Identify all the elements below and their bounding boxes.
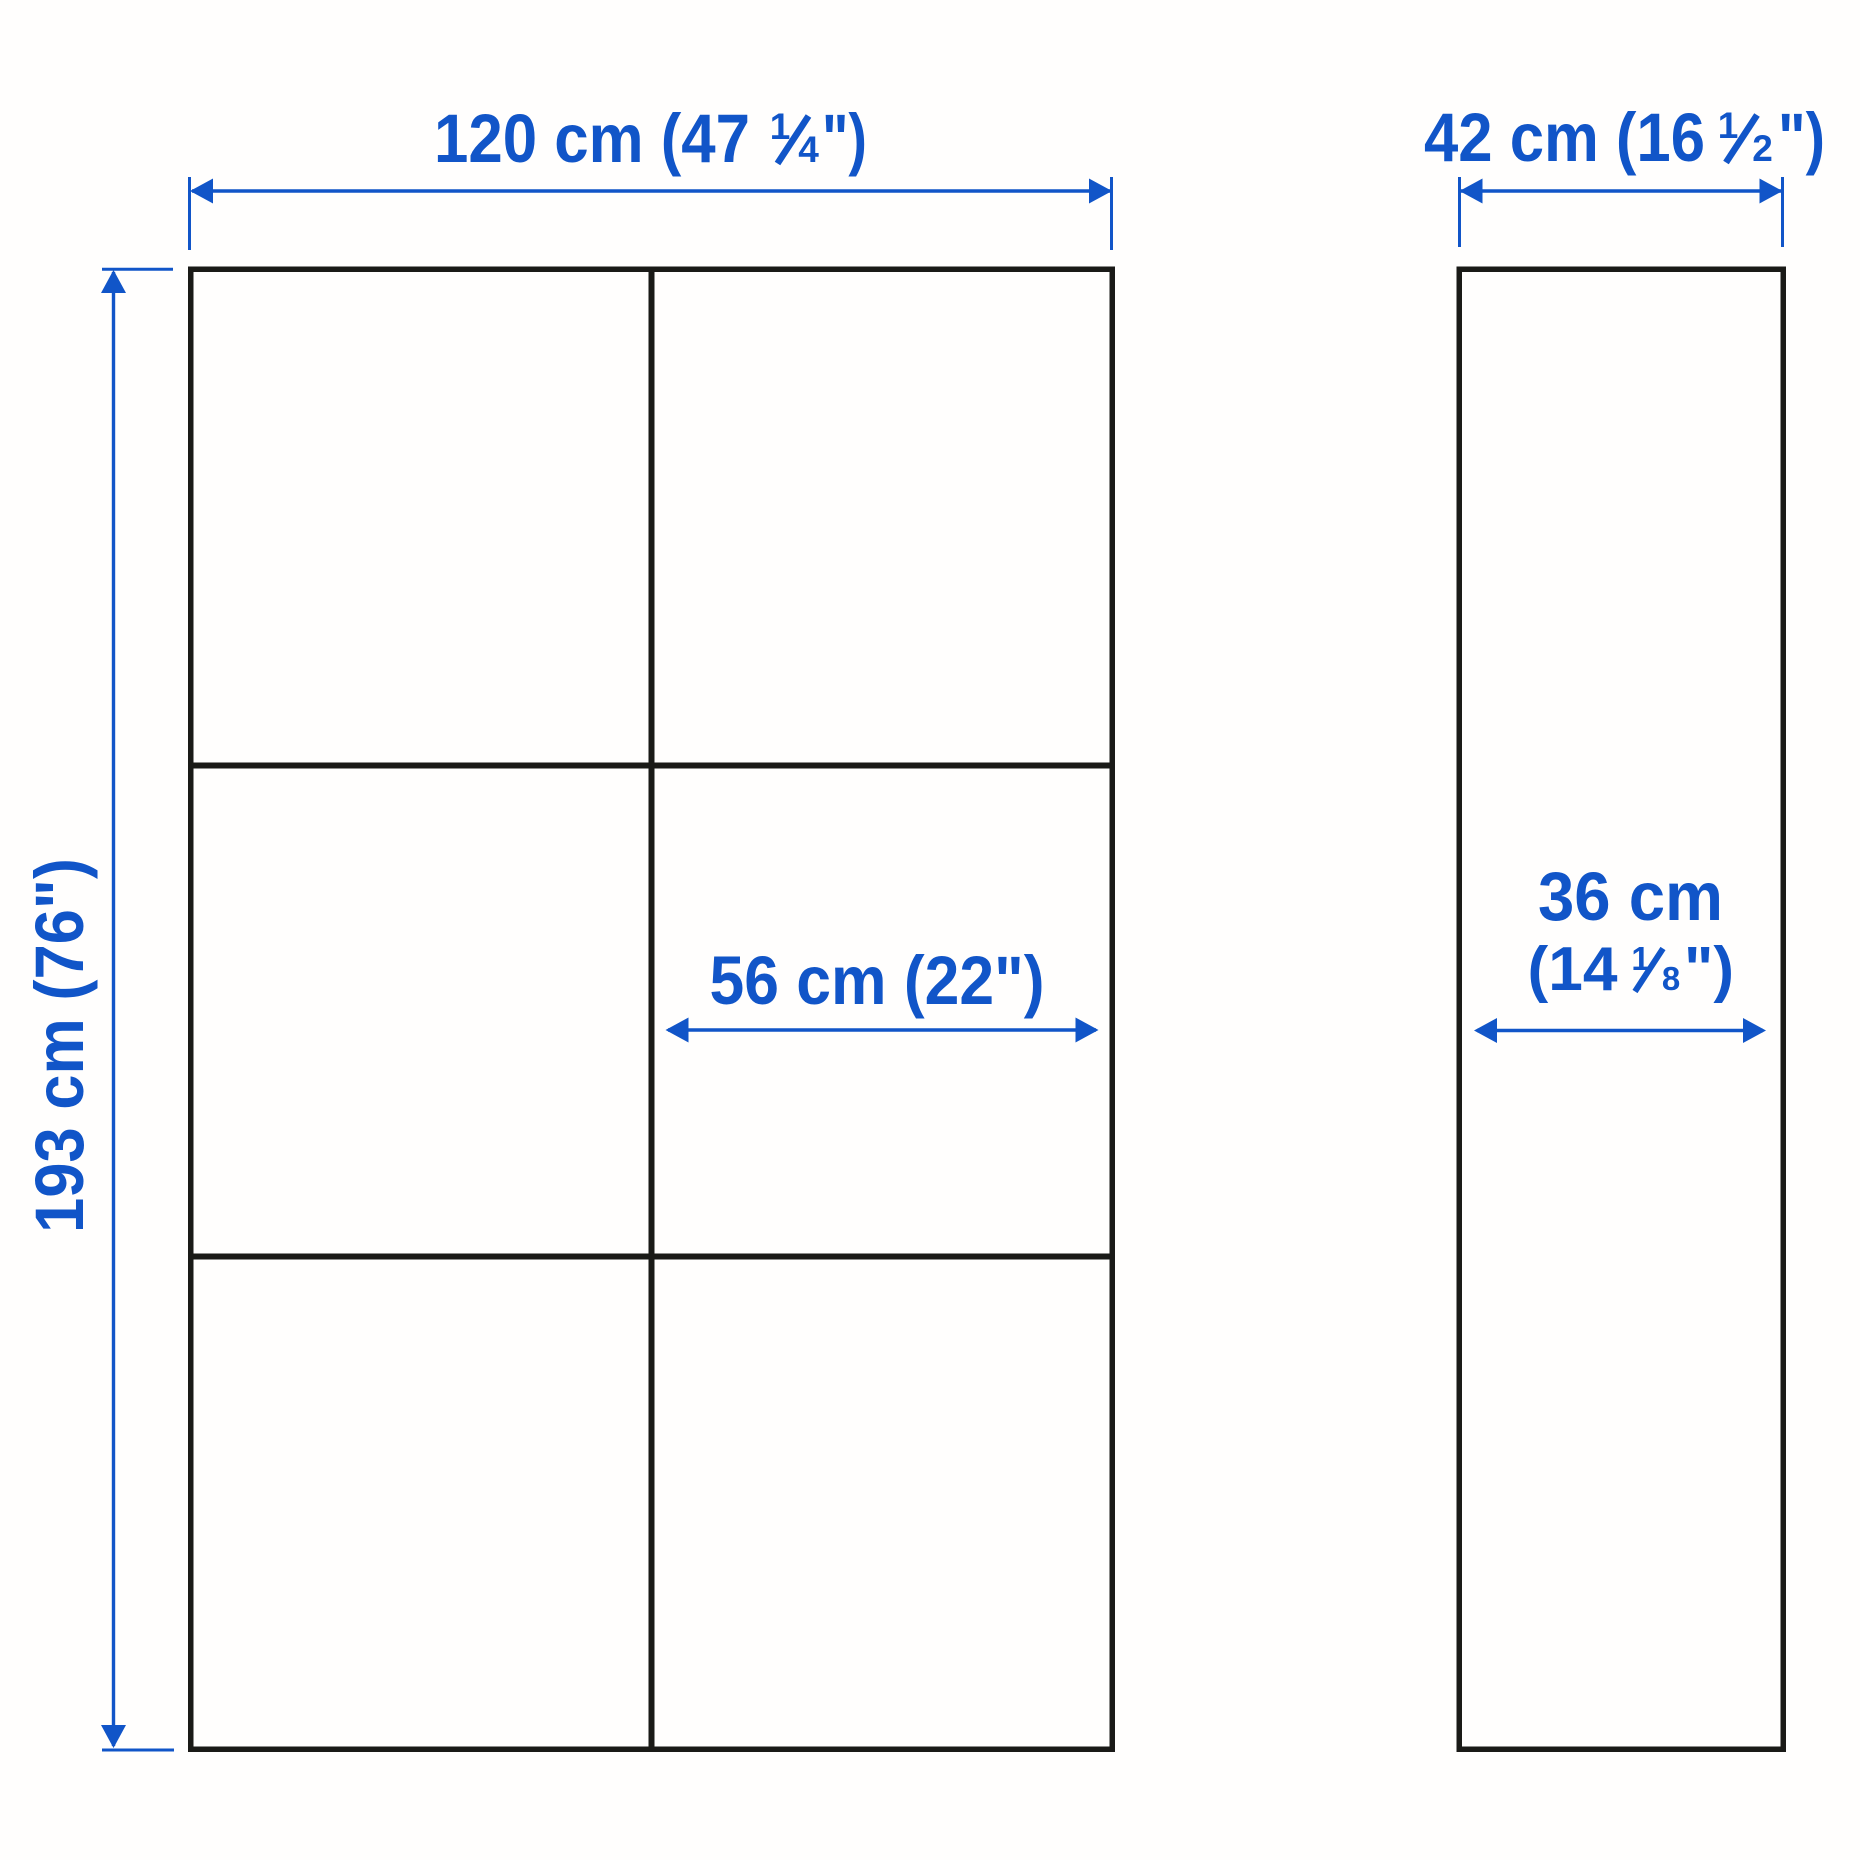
svg-text:1: 1 bbox=[1718, 105, 1739, 146]
svg-text:42 cm (16: 42 cm (16 bbox=[1424, 99, 1705, 176]
svg-text:56 cm (22"): 56 cm (22") bbox=[710, 942, 1045, 1019]
svg-text:193 cm (76"): 193 cm (76") bbox=[21, 858, 98, 1233]
svg-text:1: 1 bbox=[770, 106, 791, 147]
svg-text:8: 8 bbox=[1662, 960, 1680, 997]
svg-text:120 cm (47: 120 cm (47 bbox=[434, 100, 750, 177]
svg-text:"): ") bbox=[822, 100, 867, 177]
svg-text:(14: (14 bbox=[1528, 935, 1619, 1004]
svg-text:"): ") bbox=[1684, 935, 1734, 1004]
svg-text:36 cm: 36 cm bbox=[1538, 858, 1723, 935]
svg-text:2: 2 bbox=[1752, 128, 1773, 169]
svg-text:"): ") bbox=[1778, 99, 1825, 176]
svg-text:4: 4 bbox=[798, 129, 819, 170]
